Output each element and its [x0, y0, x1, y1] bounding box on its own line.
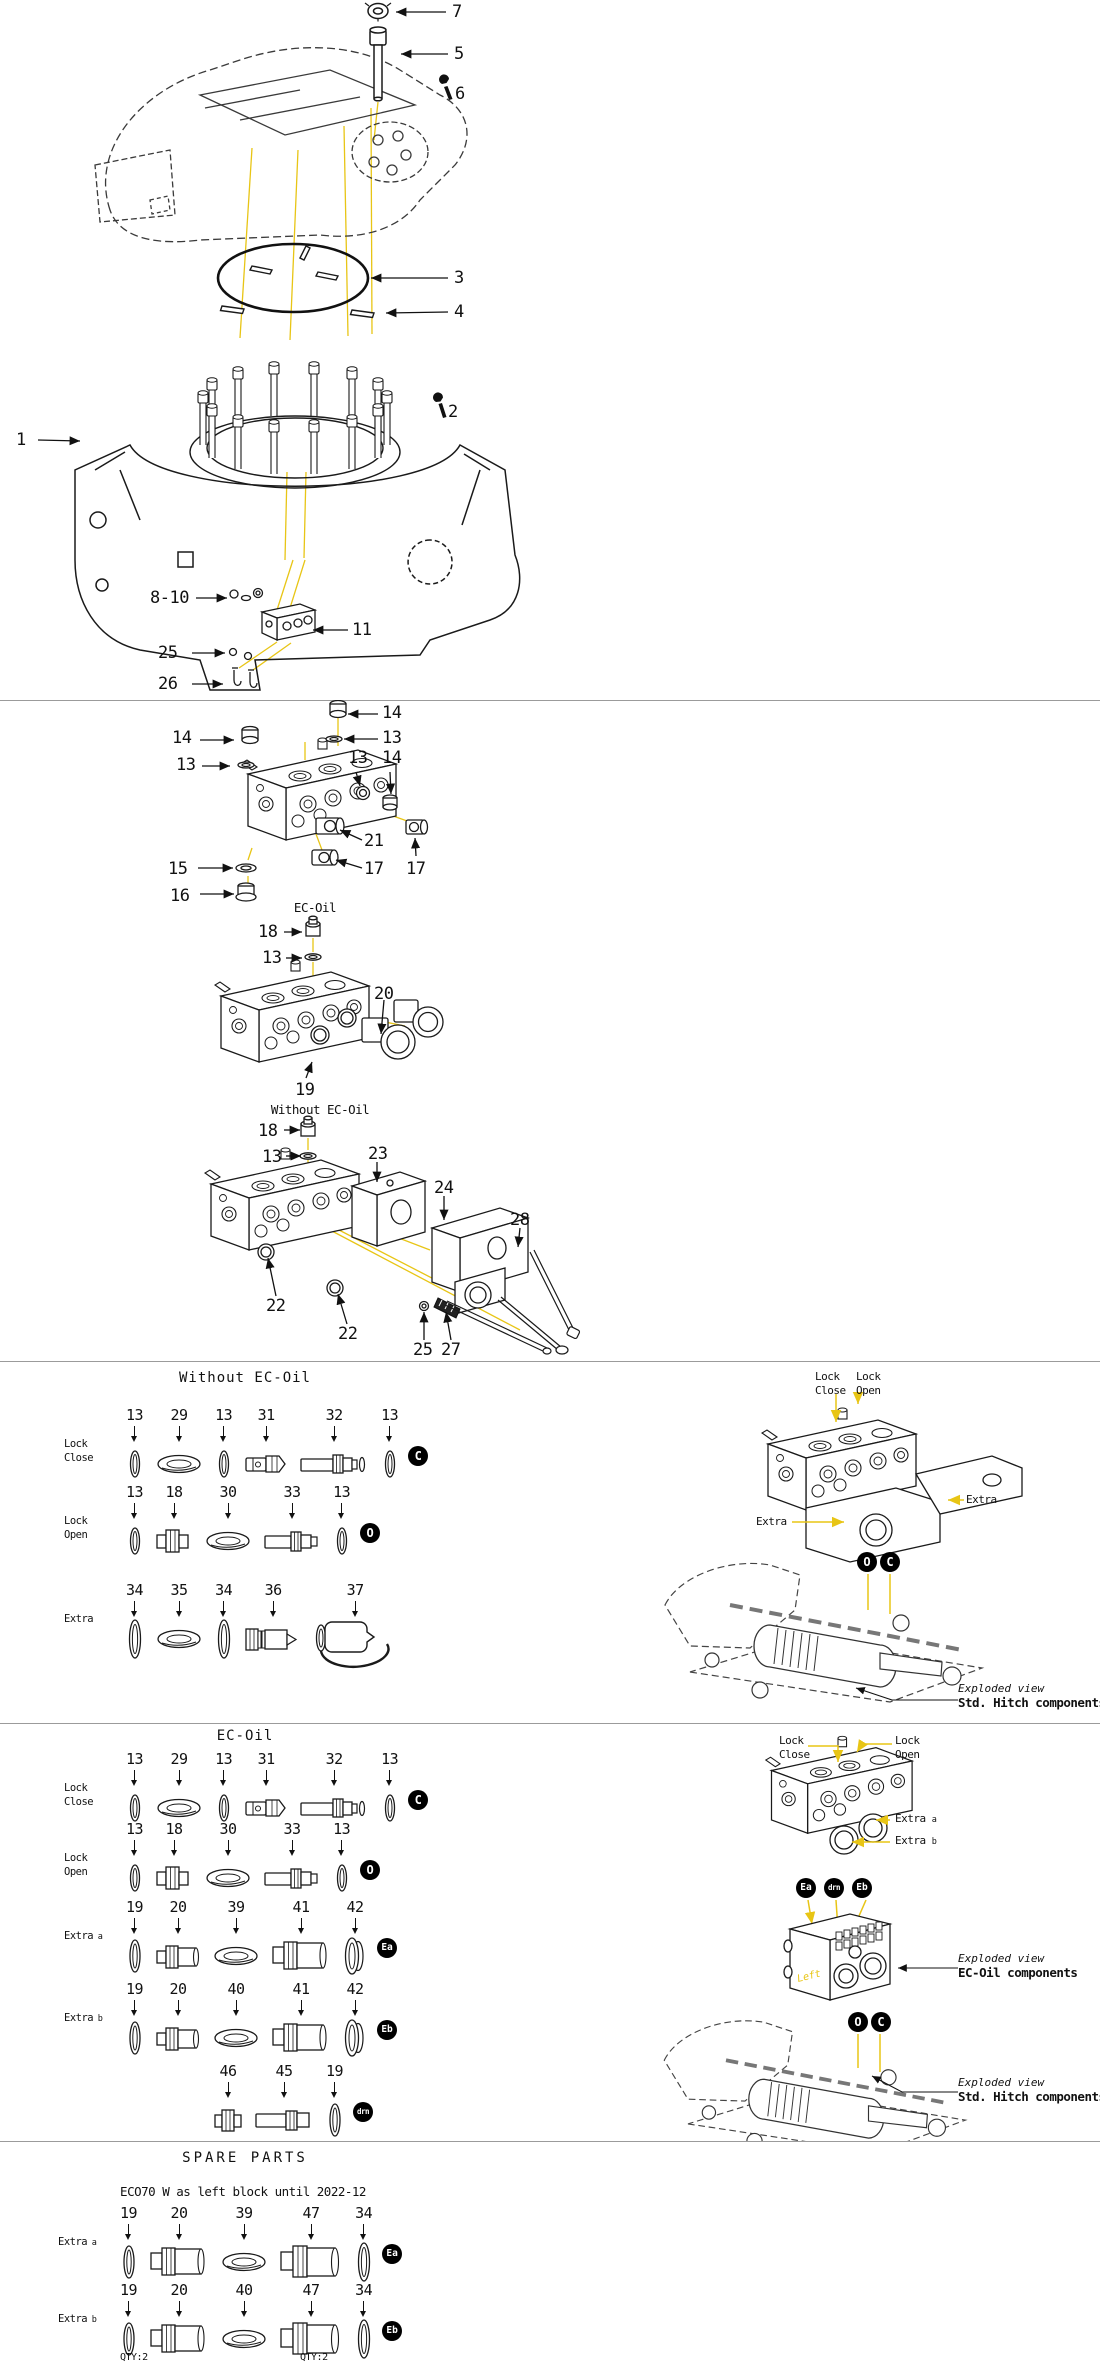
oring-m-icon [128, 2019, 142, 2057]
row-label: Extra a [58, 2236, 120, 2250]
callout-13-left: 13 [176, 755, 195, 775]
part-number: 13 [126, 1485, 143, 1500]
spare-parts-table: Extra a1920394734EaExtra b1920404734Eb [0, 2142, 460, 2372]
part-number: 13 [215, 1752, 232, 1767]
part-item-20: 20 [156, 1982, 200, 2063]
down-arrow-icon [311, 2301, 312, 2312]
seal-icon [205, 1530, 251, 1552]
callout-11: 11 [352, 620, 371, 640]
parts-row: Extra a1920394142Ea [64, 1900, 397, 1981]
badge-C: C [408, 1790, 428, 1810]
part-item-31: 31 [245, 1752, 287, 1833]
down-arrow-icon [292, 1503, 293, 1514]
callout-4: 4 [454, 302, 464, 322]
part-number: 41 [293, 1900, 310, 1915]
down-arrow-icon [178, 1918, 179, 1929]
down-arrow-icon [228, 2082, 229, 2093]
down-arrow-icon [179, 1426, 180, 1437]
callout-14-top: 14 [382, 703, 401, 723]
part-number: 13 [333, 1485, 350, 1500]
seal-icon [156, 1453, 202, 1475]
seal-icon [221, 2251, 267, 2273]
callout-14-mid: 14 [382, 748, 401, 768]
flange-icon [343, 1935, 367, 1977]
part-item-13: 13 [126, 1822, 143, 1903]
part-item-13: 13 [333, 1485, 350, 1566]
diagram-extra-right-label: Extra [966, 1493, 997, 1507]
down-arrow-icon [334, 1426, 335, 1437]
part-item-39: 39 [213, 1900, 259, 1981]
std-hitch-caption-2: Exploded viewStd. Hitch components [958, 2076, 1100, 2104]
down-arrow-icon [334, 2082, 335, 2093]
down-arrow-icon [244, 2301, 245, 2312]
fitting-icon [156, 1526, 192, 1556]
oring-s-icon [128, 1862, 142, 1894]
badge-O: O [360, 1860, 380, 1880]
callout-25: 25 [158, 643, 177, 663]
part-number: 20 [170, 1900, 187, 1915]
oring-s-icon [335, 1525, 349, 1557]
callout-1: 1 [16, 430, 26, 450]
badge-Eb: Eb [377, 2020, 397, 2040]
oring-t-icon [127, 1617, 143, 1661]
parts-row: LockOpen1318303313O [64, 1822, 380, 1903]
down-arrow-icon [301, 2000, 302, 2011]
callout-13-ec: 13 [262, 948, 281, 968]
down-arrow-icon [311, 2224, 312, 2235]
part-item-34: 34 [126, 1583, 143, 1664]
diagram-extra-a-label: Extra a [895, 1812, 936, 1826]
callout-20: 20 [374, 984, 393, 1004]
down-arrow-icon [179, 1770, 180, 1781]
down-arrow-icon [128, 2301, 129, 2312]
part-item-46: 46 [214, 2064, 242, 2145]
down-arrow-icon [244, 2224, 245, 2235]
flange-icon [343, 2017, 367, 2059]
row-label: LockOpen [64, 1515, 126, 1542]
oring-s-icon [383, 1792, 397, 1824]
diagram-lock-open-label: LockOpen [856, 1370, 881, 1398]
down-arrow-icon [355, 2000, 356, 2011]
part-item-13: 13 [381, 1408, 398, 1489]
down-arrow-icon [223, 1601, 224, 1612]
part-item-13: 13 [126, 1485, 143, 1566]
down-arrow-icon [266, 1426, 267, 1437]
oring-s-icon [335, 1862, 349, 1894]
part-number: 19 [126, 1982, 143, 1997]
section-without-ecoil: Without EC-Oil LockClose132913313213CLoc… [0, 1362, 1100, 1722]
row-label: LockOpen [64, 1852, 126, 1879]
part-item-30: 30 [205, 1822, 251, 1903]
callout-27: 27 [441, 1340, 460, 1360]
part-number: 13 [333, 1822, 350, 1837]
row-label: Extra b [64, 2012, 126, 2026]
part-number: 34 [215, 1583, 232, 1598]
coupler-l-icon [150, 2243, 208, 2281]
badge-O: O [360, 1523, 380, 1543]
badge-close: C [871, 2012, 891, 2032]
part-item-34: 34 [355, 2206, 372, 2287]
part-item-29: 29 [156, 1408, 202, 1489]
without-ecoil-subtitle: Without EC-Oil [238, 1102, 402, 1117]
oring-t-icon [356, 2317, 372, 2361]
part-item-41: 41 [272, 1900, 330, 1981]
callout-8-10: 8-10 [150, 588, 189, 608]
part-item-20: 20 [150, 2283, 208, 2364]
part-number: 13 [126, 1752, 143, 1767]
diagram-lock-close-label: LockClose [815, 1370, 846, 1398]
part-number: 45 [275, 2064, 292, 2079]
fitting-s-icon [214, 2106, 242, 2134]
part-number: 40 [236, 2283, 253, 2298]
part-item-19: 19 [326, 2064, 343, 2145]
part-item-18: 18 [156, 1485, 192, 1566]
callout-22b: 22 [338, 1324, 357, 1344]
coupler-cone-icon [245, 1623, 301, 1655]
part-number: 34 [355, 2283, 372, 2298]
part-number: 13 [126, 1408, 143, 1423]
coupler-l-icon [272, 1937, 330, 1975]
oring-t-icon [356, 2240, 372, 2284]
down-arrow-icon [355, 1601, 356, 1612]
part-item-32: 32 [300, 1408, 368, 1489]
callout-23: 23 [368, 1144, 387, 1164]
seal-icon [213, 1945, 259, 1967]
part-item-18: 18 [156, 1822, 192, 1903]
part-number: 37 [347, 1583, 364, 1598]
callout-24: 24 [434, 1178, 453, 1198]
oring-s-icon [128, 1525, 142, 1557]
down-arrow-icon [223, 1770, 224, 1781]
part-item-19: 19 [126, 1900, 143, 1981]
oring-m-icon [328, 2101, 342, 2139]
part-item-13: 13 [333, 1822, 350, 1903]
qty-right-label: QTY:2 [300, 2352, 328, 2363]
part-item-42: 42 [343, 1982, 367, 2063]
down-arrow-icon [292, 1840, 293, 1851]
part-number: 19 [120, 2283, 137, 2298]
down-arrow-icon [134, 1918, 135, 1929]
oring-s-icon [217, 1448, 231, 1480]
std-hitch-caption: Exploded viewStd. Hitch components [958, 1682, 1100, 1710]
part-item-13: 13 [126, 1408, 143, 1489]
down-arrow-icon [134, 1426, 135, 1437]
diagram-lock-open-label: LockOpen [895, 1734, 920, 1762]
down-arrow-icon [228, 1840, 229, 1851]
down-arrow-icon [223, 1426, 224, 1437]
callout-3: 3 [454, 268, 464, 288]
callout-13-mid: 13 [348, 748, 367, 768]
part-number: 40 [228, 1982, 245, 1997]
part-item-19: 19 [120, 2206, 137, 2287]
valve-long-icon [300, 1794, 368, 1822]
down-arrow-icon [389, 1426, 390, 1437]
down-arrow-icon [236, 2000, 237, 2011]
down-arrow-icon [301, 1918, 302, 1929]
part-item-33: 33 [264, 1822, 320, 1903]
part-number: 19 [326, 2064, 343, 2079]
badge-Ea: Ea [382, 2244, 402, 2264]
coupler-s-icon [156, 1940, 200, 1972]
part-item-19: 19 [126, 1982, 143, 2063]
diagram-lock-close-label: LockClose [779, 1734, 810, 1762]
callout-17a: 17 [364, 859, 383, 879]
row-label: Extra [64, 1613, 126, 1627]
part-item-33: 33 [264, 1485, 320, 1566]
part-number: 31 [258, 1752, 275, 1767]
down-arrow-icon [134, 1840, 135, 1851]
down-arrow-icon [178, 2000, 179, 2011]
part-number: 19 [126, 1900, 143, 1915]
without-ecoil-parts-table: LockClose132913313213CLockOpen1318303313… [0, 1362, 460, 1722]
coupler-s-icon [156, 2022, 200, 2054]
part-item-20: 20 [150, 2206, 208, 2287]
part-item-13: 13 [215, 1408, 232, 1489]
coupler-l-icon [272, 2019, 330, 2057]
down-arrow-icon [334, 1770, 335, 1781]
oring-t-icon [216, 1617, 232, 1661]
seal-icon [221, 2328, 267, 2350]
row-label: LockClose [64, 1438, 126, 1465]
badge-open: O [857, 1552, 877, 1572]
parts-row: Extra3435343637 [64, 1583, 396, 1670]
callout-2: 2 [448, 402, 458, 422]
row-label: LockClose [64, 1782, 126, 1809]
part-item-41: 41 [272, 1982, 330, 2063]
part-item-40: 40 [213, 1982, 259, 2063]
coupler-l-icon [150, 2320, 208, 2358]
badge-Ea: Ea [377, 1938, 397, 1958]
part-number: 19 [120, 2206, 137, 2221]
valve-long-icon [300, 1450, 368, 1478]
section-valve-block-exploded: 14 13 14 13 13 14 21 17 17 15 16 EC-Oil … [0, 700, 1100, 1360]
part-number: 30 [220, 1822, 237, 1837]
row-label: Extra b [58, 2313, 120, 2327]
section-spare-parts: SPARE PARTS ECO70 W as left block until … [0, 2142, 1100, 2372]
part-item-42: 42 [343, 1900, 367, 1981]
parts-row: Extra b1920404734Eb [58, 2283, 402, 2364]
part-number: 47 [303, 2283, 320, 2298]
coupler-xl-icon [280, 2241, 342, 2283]
part-item-47: 47 [280, 2206, 342, 2287]
callout-13-top: 13 [382, 728, 401, 748]
part-number: 18 [166, 1822, 183, 1837]
diagram-extra-left-label: Extra [756, 1515, 787, 1529]
callout-18-ec: 18 [258, 922, 277, 942]
down-arrow-icon [134, 1601, 135, 1612]
badge-drn: drn [353, 2102, 373, 2122]
callout-15: 15 [168, 859, 187, 879]
section-ecoil: EC-Oil LockClose132913313213CLockOpen131… [0, 1724, 1100, 2141]
valve-block-drawings [0, 700, 1100, 1360]
down-arrow-icon [389, 1770, 390, 1781]
part-number: 32 [326, 1408, 343, 1423]
part-item-36: 36 [245, 1583, 301, 1664]
part-number: 13 [215, 1408, 232, 1423]
oring-s-icon [128, 1448, 142, 1480]
part-item-34: 34 [215, 1583, 232, 1664]
qty-left-label: QTY:2 [120, 2352, 148, 2363]
part-number: 35 [171, 1583, 188, 1598]
seal-icon [156, 1797, 202, 1819]
part-item-13: 13 [381, 1752, 398, 1833]
part-item-39: 39 [221, 2206, 267, 2287]
part-number: 13 [126, 1822, 143, 1837]
oring-s-icon [383, 1448, 397, 1480]
part-number: 42 [347, 1900, 364, 1915]
badge-open: O [848, 2012, 868, 2032]
part-item-31: 31 [245, 1408, 287, 1489]
part-number: 18 [166, 1485, 183, 1500]
down-arrow-icon [174, 1503, 175, 1514]
ecoil-components-caption: Exploded viewEC-Oil components [958, 1952, 1100, 1980]
part-item-20: 20 [156, 1900, 200, 1981]
plug-icon [245, 1451, 287, 1477]
part-number: 13 [381, 1752, 398, 1767]
callout-14-left: 14 [172, 728, 191, 748]
part-number: 32 [326, 1752, 343, 1767]
down-arrow-icon [236, 1918, 237, 1929]
section-top-exploded-view: 7 5 6 3 4 2 1 8-10 11 25 26 [0, 0, 1100, 700]
part-number: 42 [347, 1982, 364, 1997]
seal-icon [205, 1867, 251, 1889]
callout-7: 7 [452, 2, 462, 22]
badge-drain: drn [824, 1878, 844, 1898]
parts-row: LockOpen1318303313O [64, 1485, 380, 1566]
valve-med-icon [264, 1865, 320, 1891]
part-number: 39 [236, 2206, 253, 2221]
part-number: 20 [171, 2206, 188, 2221]
down-arrow-icon [273, 1601, 274, 1612]
badge-extra-b: Eb [852, 1878, 872, 1898]
part-number: 39 [228, 1900, 245, 1915]
callout-18-w: 18 [258, 1121, 277, 1141]
badge-extra-a: Ea [796, 1878, 816, 1898]
down-arrow-icon [228, 1503, 229, 1514]
down-arrow-icon [341, 1503, 342, 1514]
parts-diagram-page: 7 5 6 3 4 2 1 8-10 11 25 26 [0, 0, 1100, 2372]
parts-row: LockClose132913313213C [64, 1408, 428, 1489]
ecoil-parts-table: LockClose132913313213CLockOpen1318303313… [0, 1724, 460, 2141]
parts-row: LockClose132913313213C [64, 1752, 428, 1833]
down-arrow-icon [128, 2224, 129, 2235]
part-number: 31 [258, 1408, 275, 1423]
seal-icon [156, 1628, 202, 1650]
diagram-extra-b-label: Extra b [895, 1834, 936, 1848]
part-number: 33 [284, 1485, 301, 1500]
callout-5: 5 [454, 44, 464, 64]
callout-13-w: 13 [262, 1147, 281, 1167]
part-number: 34 [355, 2206, 372, 2221]
callout-6: 6 [455, 84, 465, 104]
down-arrow-icon [179, 2301, 180, 2312]
plug-icon [245, 1795, 287, 1821]
callout-17b: 17 [406, 859, 425, 879]
down-arrow-icon [341, 1840, 342, 1851]
part-item-37: 37 [314, 1583, 396, 1670]
part-number: 33 [284, 1822, 301, 1837]
callout-25b: 25 [413, 1340, 432, 1360]
callout-19: 19 [295, 1080, 314, 1100]
callout-16: 16 [170, 886, 189, 906]
part-number: 34 [126, 1583, 143, 1598]
cap-strap-icon [314, 1614, 396, 1670]
down-arrow-icon [266, 1770, 267, 1781]
down-arrow-icon [363, 2224, 364, 2235]
part-item-45: 45 [255, 2064, 313, 2145]
down-arrow-icon [174, 1840, 175, 1851]
part-number: 13 [381, 1408, 398, 1423]
part-item-40: 40 [221, 2283, 267, 2364]
fitting-icon [156, 1863, 192, 1893]
part-number: 20 [171, 2283, 188, 2298]
down-arrow-icon [134, 1770, 135, 1781]
badge-C: C [408, 1446, 428, 1466]
part-number: 36 [265, 1583, 282, 1598]
valve-45-icon [255, 2106, 313, 2134]
callout-26: 26 [158, 674, 177, 694]
down-arrow-icon [355, 1918, 356, 1929]
seal-icon [213, 2027, 259, 2049]
std-hitch-diagram [640, 1362, 1100, 1722]
valve-med-icon [264, 1528, 320, 1554]
parts-row: Extra a1920394734Ea [58, 2206, 402, 2287]
callout-28: 28 [510, 1210, 529, 1230]
down-arrow-icon [284, 2082, 285, 2093]
badge-Eb: Eb [382, 2321, 402, 2341]
part-number: 47 [303, 2206, 320, 2221]
badge-close: C [880, 1552, 900, 1572]
callout-21: 21 [364, 831, 383, 851]
parts-row: 464519drn [214, 2064, 373, 2145]
down-arrow-icon [134, 1503, 135, 1514]
part-number: 46 [219, 2064, 236, 2079]
part-number: 29 [171, 1752, 188, 1767]
part-number: 20 [170, 1982, 187, 1997]
part-number: 29 [171, 1408, 188, 1423]
ecoil-subtitle: EC-Oil [255, 900, 375, 915]
part-item-34: 34 [355, 2283, 372, 2364]
row-label: Extra a [64, 1930, 126, 1944]
down-arrow-icon [363, 2301, 364, 2312]
callout-22a: 22 [266, 1296, 285, 1316]
down-arrow-icon [179, 2224, 180, 2235]
down-arrow-icon [134, 2000, 135, 2011]
part-item-30: 30 [205, 1485, 251, 1566]
down-arrow-icon [179, 1601, 180, 1612]
part-number: 41 [293, 1982, 310, 1997]
parts-row: Extra b1920404142Eb [64, 1982, 397, 2063]
part-item-35: 35 [156, 1583, 202, 1664]
oring-m-icon [122, 2243, 136, 2281]
oring-m-icon [128, 1937, 142, 1975]
part-number: 30 [220, 1485, 237, 1500]
